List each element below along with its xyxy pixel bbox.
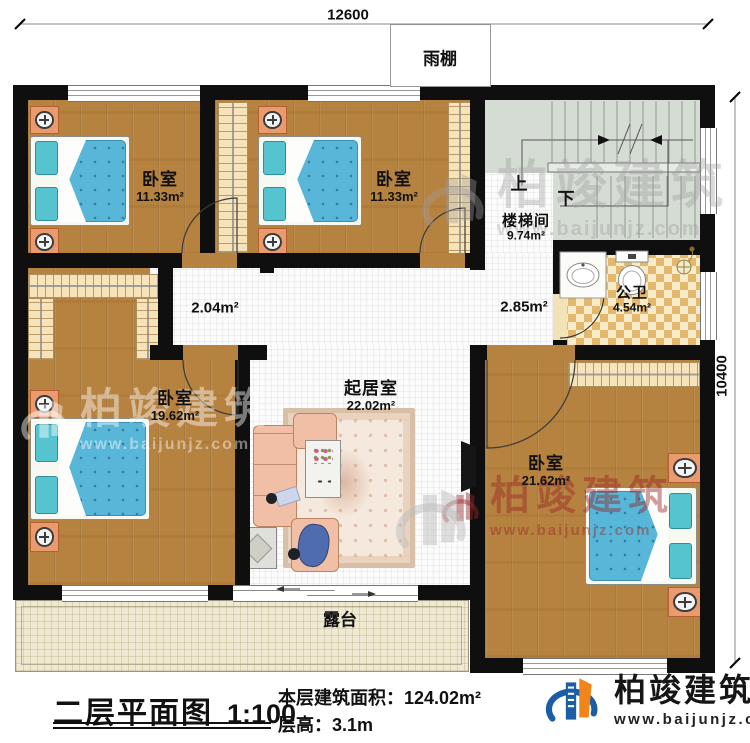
terrace-label: 露台	[323, 606, 357, 631]
pillow	[35, 187, 58, 221]
lamp-icon	[263, 111, 282, 130]
floor-plan: 柏竣建筑 www.baijunjz.com 柏竣建筑 www.baijunjz.…	[0, 0, 750, 743]
wardrobe	[568, 362, 700, 387]
wardrobe	[448, 102, 472, 268]
room-label-bedroom-n: 卧室 11.33m²	[370, 170, 418, 204]
person-head	[266, 493, 277, 504]
door-opening	[487, 345, 575, 360]
brand-name: 柏竣建筑	[614, 674, 750, 706]
nightstand	[668, 453, 702, 483]
bed	[30, 136, 130, 226]
title-underline	[53, 722, 271, 729]
person-head	[288, 548, 300, 560]
stair-up-label: 上	[511, 170, 528, 195]
wall-stub	[260, 253, 274, 273]
lamp-icon	[35, 527, 54, 547]
window	[62, 585, 208, 602]
lamp-icon	[35, 111, 54, 130]
wardrobe	[218, 102, 248, 253]
pillow	[669, 493, 692, 530]
nightstand	[30, 106, 59, 134]
lamp-icon	[673, 592, 696, 612]
wall-living-west	[235, 345, 250, 585]
walk-in-closet	[28, 274, 160, 298]
sofa	[253, 425, 297, 527]
terrace-inner-outline	[21, 606, 462, 665]
nightstand	[258, 228, 287, 256]
pillow	[35, 141, 58, 175]
room-label-stairwell: 楼梯间 9.74m²	[502, 212, 550, 243]
wall-mid-horizontal	[13, 253, 470, 268]
bed	[585, 487, 697, 585]
sliding-door	[233, 585, 418, 602]
lamp-icon	[263, 233, 282, 252]
room-label-bedroom-se: 卧室 21.62m²	[522, 454, 570, 488]
dimension-top: 12600	[327, 7, 369, 24]
door-opening	[553, 294, 567, 340]
nightstand	[30, 522, 59, 552]
flower-vase-icon	[312, 447, 333, 464]
nightstand	[30, 228, 59, 256]
pillow	[263, 141, 286, 175]
brand-logo: 柏竣建筑 www.baijunjz.com	[536, 670, 750, 732]
window	[308, 85, 420, 102]
lamp-icon	[35, 395, 54, 414]
wall-left	[13, 85, 28, 600]
bed	[30, 418, 150, 520]
dimension-right: 10400	[714, 355, 731, 397]
table-dots	[315, 479, 331, 484]
pillow	[669, 543, 692, 580]
room-label-bathroom: 公卫 4.54m²	[613, 284, 651, 315]
hall-area-east: 2.85m²	[500, 299, 548, 316]
wall-hall-west	[158, 253, 173, 360]
pillow	[35, 424, 58, 462]
coffee-table	[305, 440, 341, 498]
brand-url: www.baijunjz.com	[614, 711, 750, 728]
door-opening	[182, 253, 237, 268]
door-opening	[183, 345, 238, 360]
bed	[258, 136, 362, 226]
baijun-logo-icon	[536, 670, 606, 732]
room-label-bedroom-w: 卧室 19.62m²	[151, 389, 199, 423]
wall-br2-stair	[470, 100, 485, 270]
floor-area-stat: 本层建筑面积：124.02m²	[278, 684, 481, 710]
room-label-bedroom-nw: 卧室 11.33m²	[136, 170, 184, 204]
wall-br4-west	[470, 360, 485, 658]
window	[700, 272, 717, 340]
nightstand	[258, 106, 287, 134]
hall-area-west: 2.04m²	[191, 300, 239, 317]
wall-br1-br2	[200, 100, 215, 253]
lamp-icon	[673, 458, 696, 478]
stair-down-label: 下	[558, 185, 575, 210]
room-label-living: 起居室 22.02m²	[344, 379, 398, 413]
canopy-label: 雨棚	[423, 45, 457, 70]
window	[700, 128, 717, 214]
nightstand	[668, 587, 702, 617]
door-opening	[420, 253, 465, 268]
pillow	[263, 187, 286, 221]
floor-height-stat: 层高：3.1m	[278, 711, 373, 737]
lamp-icon	[35, 233, 54, 252]
nightstand	[30, 390, 59, 418]
window	[68, 85, 200, 102]
pillow	[35, 476, 58, 514]
wall-bath-top	[553, 240, 715, 255]
walk-in-closet	[28, 298, 54, 360]
